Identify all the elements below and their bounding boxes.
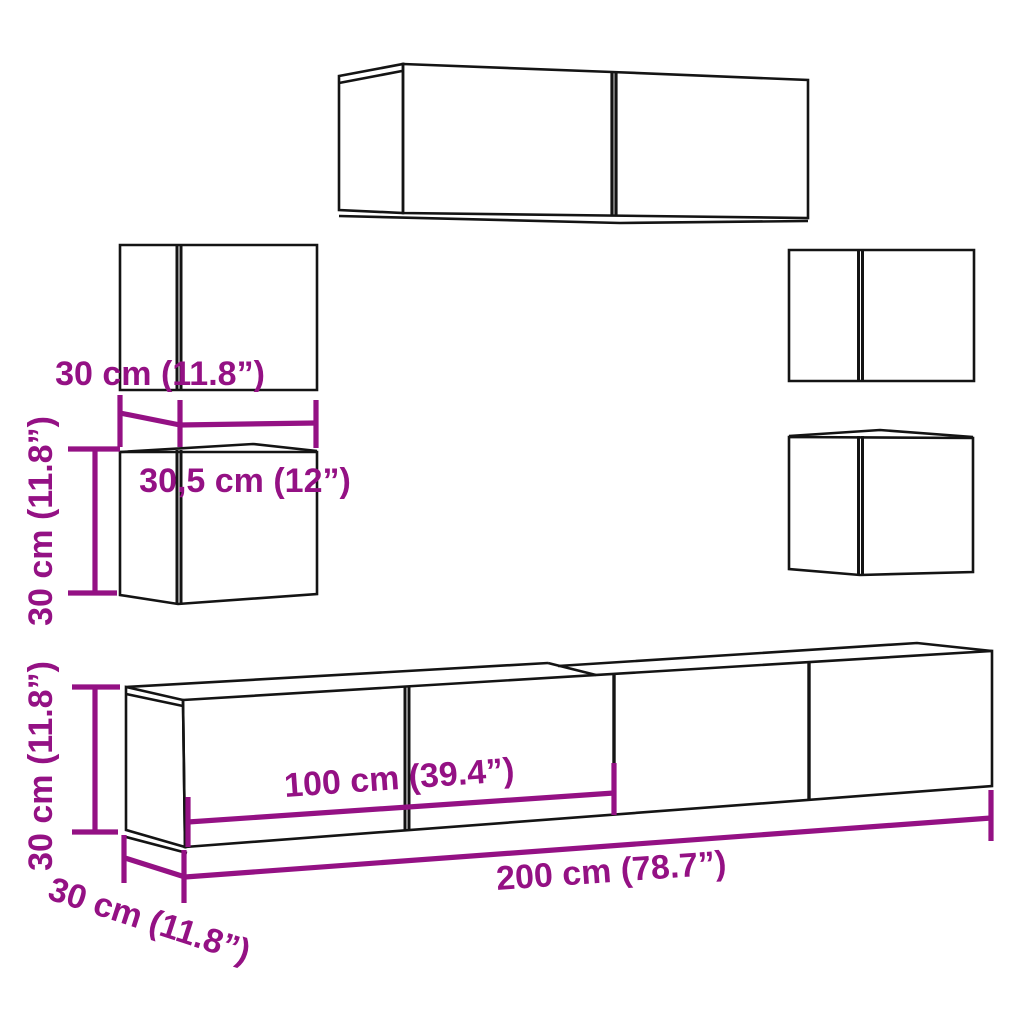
dim-line-cabinet-height (68, 449, 120, 593)
label-cabinet-width: 30,5 cm (12”) (139, 462, 351, 500)
dim-line-stand-depth (124, 835, 185, 883)
label-cabinet-height-left: 30 cm (11.8”) (22, 416, 60, 626)
wall-cabinet-upper-right (789, 250, 974, 381)
tv-stand (126, 643, 992, 853)
label-stand-half-width: 100 cm (39.4”) (283, 751, 516, 805)
label-stand-height: 30 cm (11.8”) (22, 661, 60, 871)
cabinet-line-art (120, 64, 992, 853)
dimension-diagram: 30 cm (11.8”) 30,5 cm (12”) 30 cm (11.8”… (0, 0, 1024, 1024)
wall-cabinet-top (339, 64, 808, 223)
wall-cabinet-lower-right (789, 430, 973, 575)
dim-line-stand-height (72, 687, 120, 832)
label-stand-depth: 30 cm (11.8”) (44, 870, 255, 971)
label-cabinet-depth-top: 30 cm (11.8”) (55, 355, 265, 393)
dim-line-cabinet-depth-width (120, 395, 316, 448)
